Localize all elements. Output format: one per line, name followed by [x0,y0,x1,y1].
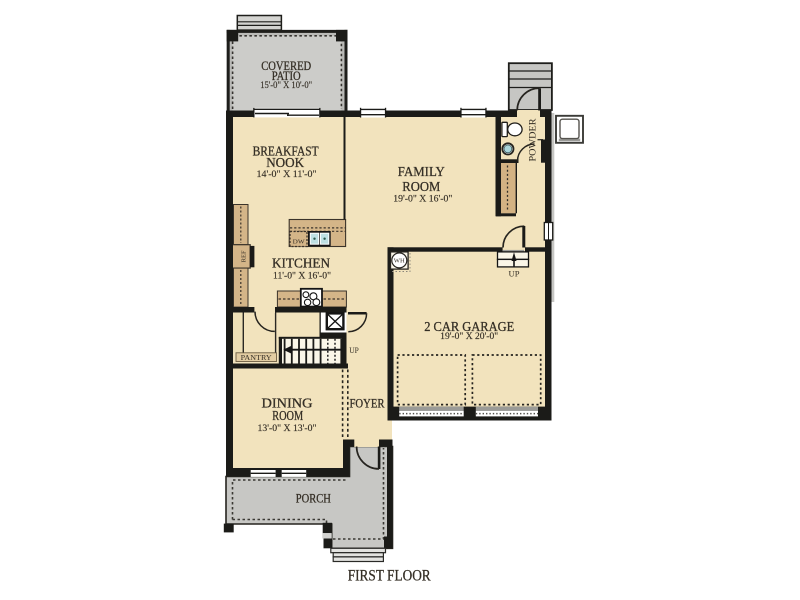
svg-text:ROOM: ROOM [272,409,303,424]
svg-text:UP: UP [349,346,359,355]
svg-text:ROOM: ROOM [402,180,440,195]
svg-text:POWDER: POWDER [527,119,537,162]
svg-text:PORCH: PORCH [296,491,331,505]
svg-text:FAMILY: FAMILY [398,165,445,180]
svg-text:PANTRY: PANTRY [241,355,272,362]
svg-text:11'-0" X 16'-0": 11'-0" X 16'-0" [273,271,331,281]
svg-text:19'-0" X 16'-0": 19'-0" X 16'-0" [393,194,452,204]
svg-text:FIRST FLOOR: FIRST FLOOR [348,568,431,585]
svg-text:UP: UP [509,269,521,278]
svg-text:WH: WH [394,259,406,265]
svg-text:14'-0" X 11'-0": 14'-0" X 11'-0" [257,170,317,180]
svg-text:19'-0" X 20'-0": 19'-0" X 20'-0" [440,332,498,342]
svg-text:KITCHEN: KITCHEN [272,256,330,271]
svg-text:REF: REF [242,250,248,263]
svg-text:FOYER: FOYER [350,397,386,411]
svg-text:13'-0" X 13'-0": 13'-0" X 13'-0" [258,424,317,434]
svg-text:15'-0" X 10'-0": 15'-0" X 10'-0" [260,81,312,91]
svg-text:DW: DW [293,239,306,246]
